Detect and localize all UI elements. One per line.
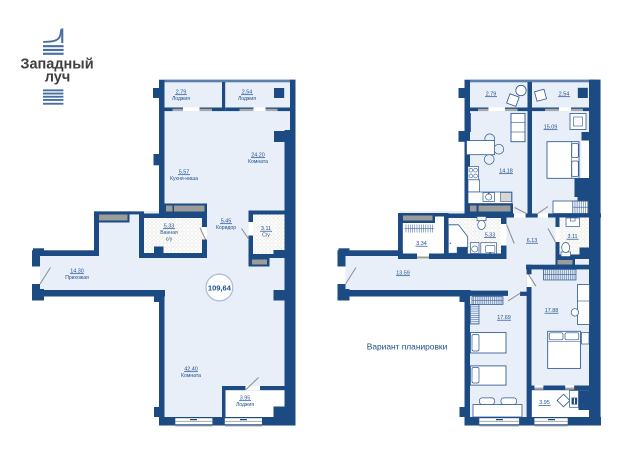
svg-text:Прихожая: Прихожая — [65, 275, 89, 281]
svg-text:Вариант планировки: Вариант планировки — [367, 342, 448, 352]
svg-text:С/у: С/у — [262, 233, 270, 239]
svg-text:Лоджия: Лоджия — [238, 96, 256, 102]
svg-text:Комната: Комната — [181, 373, 201, 379]
svg-text:Ванная: Ванная — [160, 230, 178, 236]
svg-text:Лоджия: Лоджия — [172, 96, 190, 102]
svg-text:Коридор: Коридор — [216, 225, 236, 231]
svg-text:Лоджия: Лоджия — [236, 402, 254, 408]
svg-text:Кухня-ниша: Кухня-ниша — [170, 176, 198, 182]
svg-text:109,64: 109,64 — [208, 283, 232, 292]
svg-text:с/у: с/у — [166, 236, 173, 242]
svg-text:луч: луч — [45, 69, 71, 85]
svg-text:Комната: Комната — [248, 159, 268, 165]
